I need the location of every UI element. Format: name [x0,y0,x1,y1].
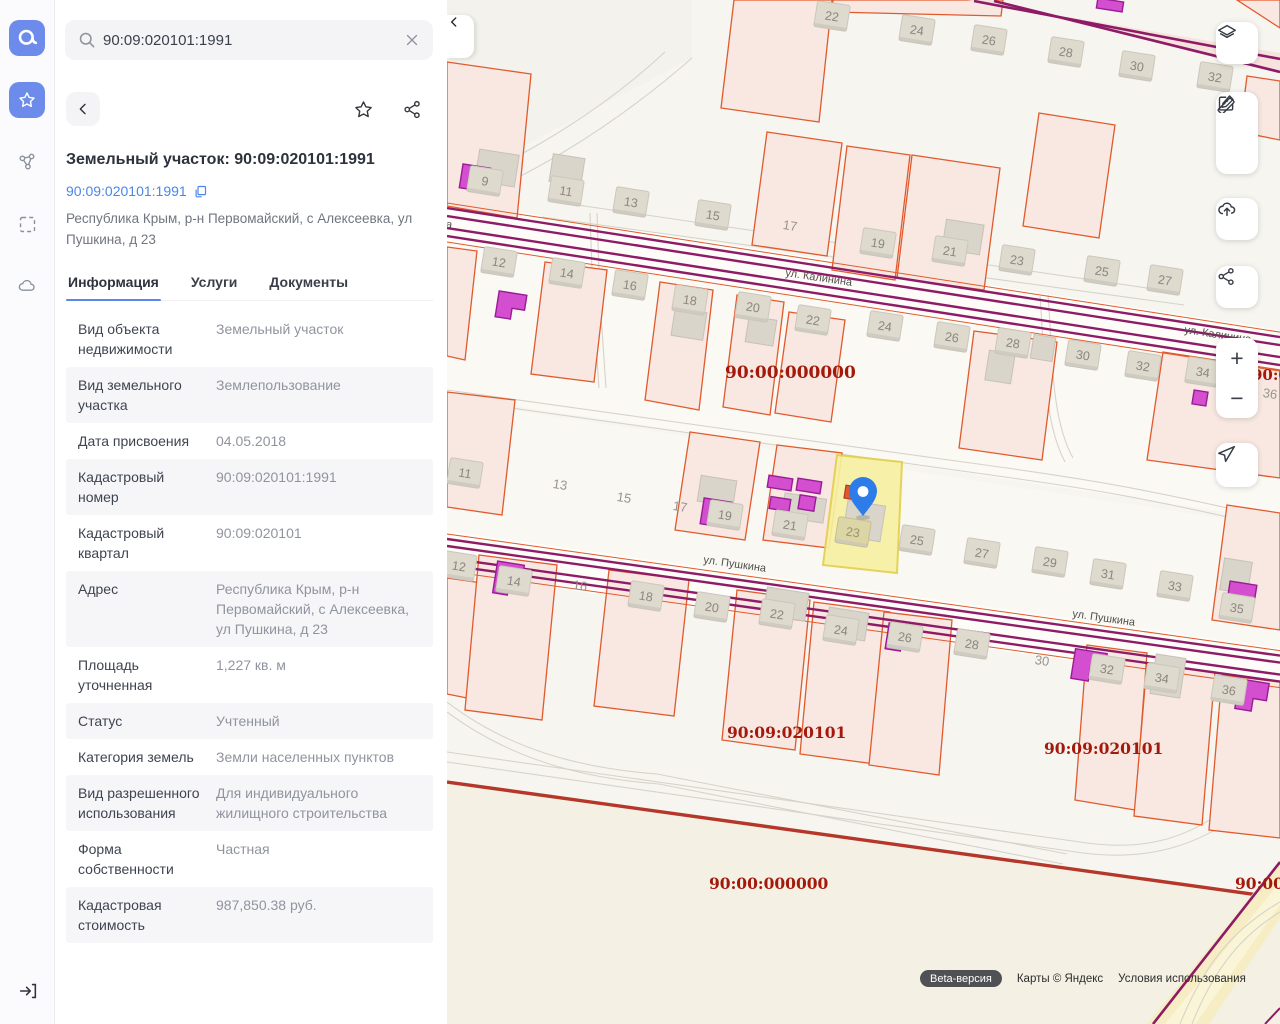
page-title: Земельный участок: 90:09:020101:1991 [66,149,433,170]
house-number: 36 [1262,385,1279,402]
zoom-controls: + − [1216,338,1258,418]
address-plate: 20 [694,592,731,623]
svg-text:25: 25 [909,532,925,548]
svg-text:30: 30 [1075,347,1091,363]
address-plate: 12 [481,247,518,278]
address-plate: 26 [971,25,1008,56]
address-plate: 35 [1219,593,1256,624]
detail-row-value: 90:09:020101:1991 [216,467,433,507]
svg-text:26: 26 [897,629,913,645]
address-plate: 28 [1048,37,1085,68]
address-plate: 14 [496,566,533,597]
house-number: 30 [1034,652,1051,669]
address-plate: 24 [823,615,860,646]
detail-row-value: 04.05.2018 [216,431,433,451]
copy-icon[interactable] [193,184,208,199]
svg-text:24: 24 [833,622,849,638]
quarter-label: 90:00:000000 [1235,874,1280,893]
svg-text:28: 28 [1058,44,1074,60]
dashed-square-icon [17,214,38,235]
detail-row: Дата присвоения04.05.2018 [66,423,433,459]
address-plate: 34 [1144,663,1181,694]
address-plate: 27 [964,538,1001,569]
address-plate: 23 [999,245,1036,276]
object-header [66,92,423,126]
svg-text:20: 20 [704,599,720,615]
edit-icon [1216,92,1237,113]
quarter-label: 90:09:020101 [727,723,846,742]
address-plate: 21 [932,236,969,267]
address-plate: 25 [899,525,936,556]
building-magenta [769,497,791,512]
star-icon [17,90,37,110]
address-plate: 20 [735,292,772,323]
detail-row-value: Частная [216,839,433,879]
detail-row-value: Земли населенных пунктов [216,747,433,767]
address-plate: 32 [1125,351,1162,382]
svg-text:27: 27 [1157,272,1173,288]
upload-button[interactable] [1216,198,1258,240]
plus-icon: + [1230,347,1243,370]
edit-button[interactable] [1216,133,1258,173]
svg-text:25: 25 [1094,263,1110,279]
detail-row: АдресРеспублика Крым, р-н Первомайский, … [66,571,433,647]
parcel[interactable] [752,132,842,256]
share-map-button[interactable] [1216,266,1258,308]
details-panel: Земельный участок: 90:09:020101:1991 90:… [55,0,447,1024]
svg-text:11: 11 [558,184,573,200]
tab-2[interactable]: Документы [267,270,350,300]
svg-text:22: 22 [805,312,821,328]
building-magenta [1192,390,1208,406]
tab-bar: ИнформацияУслугиДокументы [66,270,433,301]
house-number: 17 [672,498,689,515]
address-plate: 22 [814,1,851,32]
detail-row: Вид земельного участкаЗемлепользование [66,367,433,423]
svg-text:14: 14 [506,573,522,589]
back-button[interactable] [66,92,100,126]
svg-text:16: 16 [622,277,638,293]
detail-row-label: Адрес [78,579,202,639]
svg-text:21: 21 [782,517,798,533]
svg-text:19: 19 [717,507,733,523]
cloud-icon [16,275,38,297]
detail-row: Кадастровая стоимость987,850.38 руб. [66,887,433,943]
svg-text:23: 23 [1009,252,1025,268]
house-number: 13 [552,476,569,493]
address-plate: 25 [1084,256,1121,287]
svg-text:14: 14 [559,265,575,281]
layers-button[interactable] [1216,22,1258,64]
address-plate: 30 [1065,340,1102,371]
svg-text:34: 34 [1154,670,1170,686]
svg-text:33: 33 [1167,578,1183,594]
detail-row-value: Республика Крым, р-н Первомайский, с Але… [216,579,433,639]
search-input[interactable] [65,20,433,60]
detail-row: Кадастровый номер90:09:020101:1991 [66,459,433,515]
svg-text:21: 21 [942,243,958,259]
detail-row-label: Категория земель [78,747,202,767]
address-plate: 13 [613,187,650,218]
collapse-panel-button[interactable] [447,15,474,58]
address-plate: 19 [860,228,897,259]
svg-text:20: 20 [745,299,761,315]
nspd-logo-icon [16,27,38,49]
address-plate: 19 [707,500,744,531]
svg-text:12: 12 [491,254,507,270]
address-plate: 23 [835,517,872,548]
address-plate: 21 [772,510,809,541]
clear-search-icon[interactable] [403,31,421,54]
svg-text:22: 22 [824,8,840,24]
svg-text:27: 27 [974,545,990,561]
yandex-copyright-link[interactable]: Карты © Яндекс [1017,973,1103,985]
detail-row-value: 987,850.38 руб. [216,895,433,935]
svg-text:29: 29 [1042,554,1058,570]
detail-row-value: 1,227 кв. м [216,655,433,695]
address-plate: 33 [1157,571,1194,602]
share-nodes-icon [1216,266,1237,287]
address-plate: 22 [759,599,796,630]
detail-row-label: Кадастровый номер [78,467,202,507]
address-plate: 16 [612,270,649,301]
cloud-upload-icon [1216,198,1238,220]
address-plate: 24 [899,15,936,46]
tab-1[interactable]: Услуги [189,270,240,300]
address-plate: 26 [934,322,971,353]
address-plate: 30 [1119,51,1156,82]
app-rail [0,0,55,1024]
zoom-in-button[interactable]: + [1216,338,1258,378]
quarter-label: 90:00:000000 [725,363,856,383]
svg-text:24: 24 [909,22,925,38]
detail-row: СтатусУчтенный [66,703,433,739]
svg-text:31: 31 [1100,566,1116,582]
detail-row: Вид разрешенного использованияДля индиви… [66,775,433,831]
address-plate: 26 [887,622,924,653]
svg-text:22: 22 [769,606,785,622]
svg-text:23: 23 [845,524,861,540]
address-plate: 9 [467,166,504,197]
svg-text:24: 24 [877,318,893,334]
house-number: 17 [782,217,799,234]
address-plate: 18 [672,285,709,316]
address-plate: 31 [1090,559,1127,590]
svg-text:18: 18 [638,588,654,604]
svg-text:18: 18 [682,292,698,308]
favorite-star-icon[interactable] [353,99,374,120]
sidebar-item-cloud[interactable] [9,268,45,304]
svg-text:11: 11 [457,466,472,482]
svg-text:26: 26 [981,32,997,48]
address-plate: 32 [1197,62,1234,93]
detail-row-label: Кадастровый квартал [78,523,202,563]
map-attribution: Beta-версия Карты © Яндекс Условия испол… [920,970,1246,987]
address-plate: 22 [795,305,832,336]
detail-row-value: Для индивидуального жилищного строительс… [216,783,433,823]
svg-text:28: 28 [964,636,980,652]
detail-row-value: 90:09:020101 [216,523,433,563]
svg-text:15: 15 [705,207,721,223]
navigate-arrow-icon [1216,443,1238,465]
address-plate: 12 [447,551,477,582]
svg-text:26: 26 [944,329,960,345]
address-plate: 11 [548,176,585,207]
detail-row-label: Форма собственности [78,839,202,879]
sidebar-item-sign-in[interactable] [0,980,55,1002]
sidebar-item-layers-graph[interactable] [9,144,45,180]
svg-text:32: 32 [1135,358,1151,374]
minus-icon: − [1230,387,1243,410]
login-icon [17,980,39,1002]
address-plate: 15 [695,200,732,231]
address-plate: 36 [1211,675,1248,706]
svg-text:35: 35 [1229,600,1245,616]
building-magenta [798,495,816,511]
address-plate: 27 [1147,265,1184,296]
detail-row-value: Учтенный [216,711,433,731]
quarter-label: 90:09:020101 [1044,739,1163,758]
detail-row-label: Вид объекта недвижимости [78,319,202,359]
address-plate: 29 [1032,547,1069,578]
svg-text:30: 30 [1129,58,1145,74]
detail-row-label: Дата присвоения [78,431,202,451]
zoom-out-button[interactable]: − [1216,378,1258,418]
app-logo[interactable] [9,20,45,56]
detail-row-label: Статус [78,711,202,731]
detail-row-label: Вид земельного участка [78,375,202,415]
share-icon[interactable] [402,99,423,120]
tab-0[interactable]: Информация [66,270,161,300]
detail-row-label: Площадь уточненная [78,655,202,695]
detail-row-value: Земельный участок [216,319,433,359]
cadastral-number-link[interactable]: 90:09:020101:1991 [66,183,187,199]
detail-row: Площадь уточненная1,227 кв. м [66,647,433,703]
terms-link[interactable]: Условия использования [1118,973,1246,985]
map-area[interactable]: ул. Калининаул. Калининаул. Калининаул. … [447,0,1280,1024]
locate-button[interactable] [1216,443,1258,487]
layers-icon [1216,22,1238,44]
svg-text:19: 19 [870,235,886,251]
details-table: Вид объекта недвижимостиЗемельный участо… [66,311,433,943]
sidebar-item-favorites[interactable] [9,82,45,118]
svg-text:32: 32 [1099,661,1115,677]
detail-row: Кадастровый квартал90:09:020101 [66,515,433,571]
detail-row: Категория земельЗемли населенных пунктов [66,739,433,775]
house-number: 16 [572,577,589,594]
sidebar-item-area-select[interactable] [9,206,45,242]
address-plate: 24 [867,311,904,342]
building-footprint [1030,334,1055,361]
house-number: 15 [616,489,633,506]
detail-row-label: Вид разрешенного использования [78,783,202,823]
svg-text:28: 28 [1005,335,1021,351]
object-address: Республика Крым, р-н Первомайский, с Але… [66,208,433,250]
polygon-nodes-icon [16,151,38,173]
address-plate: 32 [1089,654,1126,685]
search-bar [65,20,433,60]
svg-text:34: 34 [1195,364,1211,380]
measure-edit-group [1216,92,1258,174]
svg-text:12: 12 [451,558,467,574]
address-plate: 28 [995,328,1032,359]
address-plate: 14 [549,258,586,289]
svg-text:13: 13 [623,194,639,210]
detail-row-value: Землепользование [216,375,433,415]
parcel[interactable] [1023,113,1115,238]
detail-row: Форма собственностиЧастная [66,831,433,887]
search-icon [77,30,97,55]
quarter-label: 90:00:000000 [709,874,829,893]
detail-row: Вид объекта недвижимостиЗемельный участо… [66,311,433,367]
address-plate: 18 [628,581,665,612]
detail-row-label: Кадастровая стоимость [78,895,202,935]
svg-text:36: 36 [1221,682,1237,698]
address-plate: 11 [447,458,483,489]
beta-badge: Beta-версия [920,970,1002,987]
cadastral-map-svg[interactable]: ул. Калининаул. Калининаул. Калининаул. … [447,0,1280,1024]
address-plate: 28 [954,629,991,660]
svg-text:32: 32 [1207,69,1223,85]
